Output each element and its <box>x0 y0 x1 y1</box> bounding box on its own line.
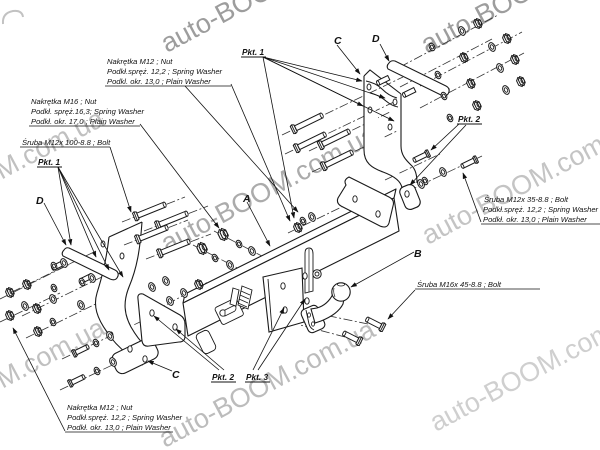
svg-text:Podkł. okr. 17,0 ; Plain Washe: Podkł. okr. 17,0 ; Plain Washer <box>31 117 135 126</box>
svg-text:D: D <box>372 33 380 45</box>
svg-text:Podkł. spręż.16,3; Spring Wash: Podkł. spręż.16,3; Spring Washer <box>31 107 144 116</box>
svg-text:Śruba M16x 45-8.8 ; Bolt: Śruba M16x 45-8.8 ; Bolt <box>417 280 502 289</box>
svg-text:C: C <box>334 35 342 47</box>
svg-text:C: C <box>172 369 180 381</box>
svg-text:Podkl. okr. 13,0 ; Plain Wash: Podkl. okr. 13,0 ; Plain Washer <box>107 77 211 86</box>
svg-text:Nakrętka M12 ; Nut: Nakrętka M12 ; Nut <box>107 57 173 66</box>
svg-text:Nakrętka M16 ; Nut: Nakrętka M16 ; Nut <box>31 97 97 106</box>
svg-text:Podkł.spręż. 12,2 ; Spring Was: Podkł.spręż. 12,2 ; Spring Washer <box>67 413 183 422</box>
svg-text:Śruba M12x 100-8.8 ; Bolt: Śruba M12x 100-8.8 ; Bolt <box>22 138 111 147</box>
svg-text:Pkt. 1: Pkt. 1 <box>38 157 61 167</box>
svg-text:Podkł. okr. 13,0 ; Plain Wash: Podkł. okr. 13,0 ; Plain Washer <box>483 215 587 224</box>
svg-text:Pkt. 2: Pkt. 2 <box>458 114 481 124</box>
svg-text:D: D <box>36 195 44 207</box>
svg-text:Podkł.spręż. 12,2 ; Spring Was: Podkł.spręż. 12,2 ; Spring Washer <box>483 205 599 214</box>
svg-text:Podkł.spręż. 12,2 ; Spring Was: Podkł.spręż. 12,2 ; Spring Washer <box>107 67 223 76</box>
svg-text:B: B <box>414 248 422 260</box>
svg-text:A: A <box>242 193 251 205</box>
svg-text:Podkł. okr. 13,0 ; Plain Wash: Podkł. okr. 13,0 ; Plain Washer <box>67 423 171 432</box>
svg-text:Pkt. 1: Pkt. 1 <box>242 47 265 57</box>
svg-text:Nakrętka M12 ; Nut: Nakrętka M12 ; Nut <box>67 403 133 412</box>
svg-text:Śruba M12x 35-8.8 ; Bolt: Śruba M12x 35-8.8 ; Bolt <box>484 195 569 204</box>
svg-text:Pkt. 2: Pkt. 2 <box>212 372 235 382</box>
svg-text:Pkt. 3: Pkt. 3 <box>246 372 269 382</box>
